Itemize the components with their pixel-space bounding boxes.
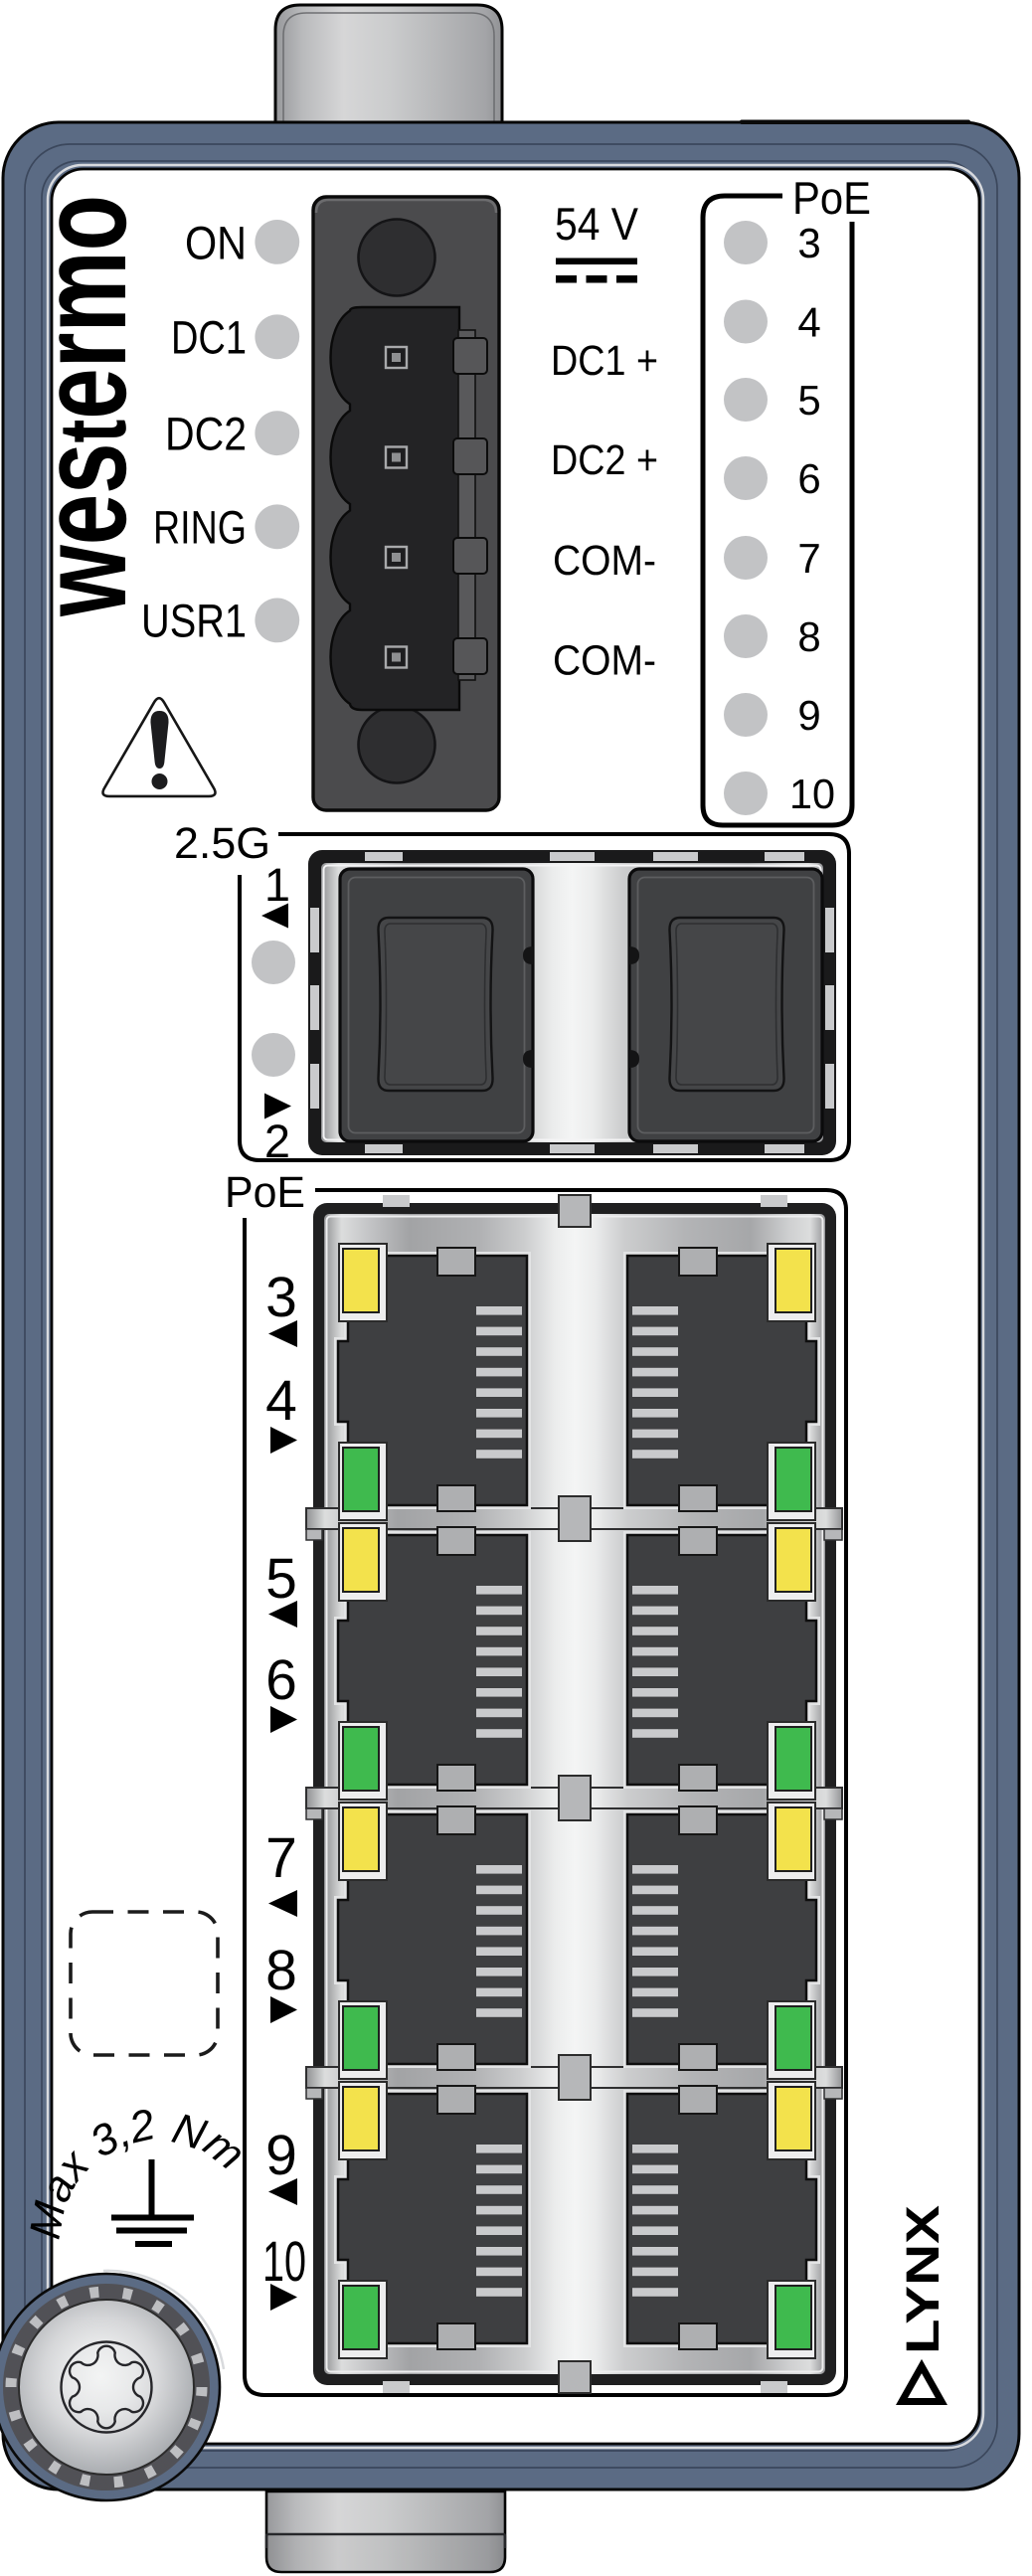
- svg-text:1: 1: [264, 858, 290, 911]
- svg-text:2.5G: 2.5G: [174, 819, 270, 868]
- svg-text:DC2 +: DC2 +: [551, 437, 658, 484]
- svg-text:westermo: westermo: [15, 195, 152, 617]
- svg-text:RING: RING: [153, 501, 247, 554]
- svg-text:PoE: PoE: [792, 172, 871, 224]
- svg-text:DC1: DC1: [171, 311, 247, 364]
- svg-text:9: 9: [265, 2124, 297, 2187]
- svg-text:DC1 +: DC1 +: [551, 338, 658, 385]
- svg-text:4: 4: [797, 299, 820, 346]
- svg-text:9: 9: [797, 692, 820, 739]
- svg-text:7: 7: [797, 535, 820, 582]
- svg-text:54 V: 54 V: [555, 198, 638, 250]
- svg-text:6: 6: [797, 455, 820, 502]
- svg-text:COM-: COM-: [553, 538, 656, 585]
- svg-text:PoE: PoE: [225, 1168, 305, 1217]
- svg-text:7: 7: [265, 1826, 297, 1890]
- svg-text:3: 3: [265, 1266, 297, 1329]
- svg-text:8: 8: [797, 613, 820, 660]
- svg-text:LYNX: LYNX: [896, 2205, 948, 2354]
- svg-text:10: 10: [262, 2230, 306, 2294]
- svg-text:10: 10: [789, 771, 835, 817]
- svg-text:8: 8: [265, 1939, 297, 2002]
- svg-text:5: 5: [797, 377, 820, 424]
- svg-text:DC2: DC2: [165, 408, 247, 460]
- svg-text:2: 2: [264, 1115, 290, 1167]
- svg-text:USR1: USR1: [141, 595, 247, 647]
- svg-text:ON: ON: [185, 217, 247, 269]
- svg-text:6: 6: [265, 1648, 297, 1712]
- svg-text:3: 3: [797, 220, 820, 266]
- svg-text:4: 4: [265, 1369, 297, 1433]
- svg-text:COM-: COM-: [553, 638, 656, 685]
- svg-text:5: 5: [265, 1547, 297, 1611]
